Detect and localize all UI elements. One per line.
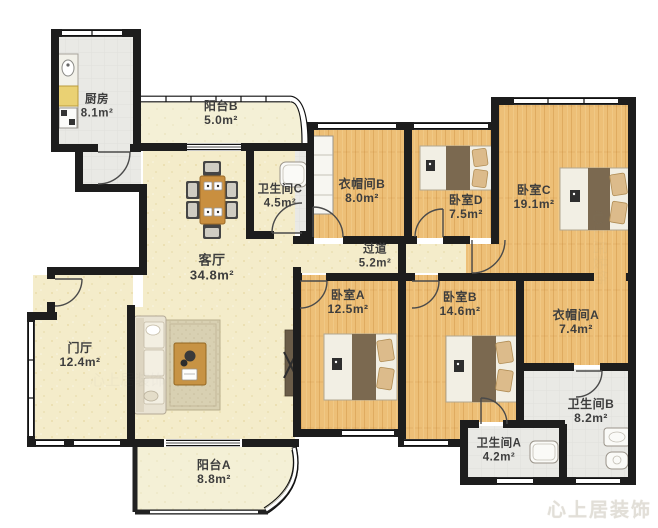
- bed-b-icon: [446, 336, 517, 402]
- coffee-table-icon: [174, 343, 206, 385]
- room-area: 14.6m²: [439, 304, 480, 318]
- room-label-bedroom-b: 卧室B 14.6m²: [439, 290, 480, 318]
- washbasin-icon: [530, 441, 558, 463]
- room-name: 卧室A: [327, 288, 368, 302]
- room-name: 卧室B: [439, 290, 480, 304]
- svg-text:心上居装饰: 心上居装饰: [591, 210, 608, 285]
- room-name: 过道: [359, 243, 392, 257]
- room-label-foyer: 门厅 12.4m²: [59, 341, 100, 369]
- room-label-bedroom-c: 卧室C 19.1m²: [513, 183, 554, 211]
- room-label-bedroom-d: 卧室D 7.5m²: [449, 193, 483, 221]
- room-name: 卫生间A: [477, 437, 522, 451]
- room-area: 5.2m²: [359, 257, 392, 271]
- room-label-cloakroom-a: 衣帽间A 7.4m²: [553, 308, 600, 336]
- kitchen-counter-icon: [58, 54, 78, 128]
- room-area: 4.5m²: [258, 197, 303, 211]
- room-area: 4.2m²: [477, 451, 522, 465]
- room-name: 客厅: [190, 253, 234, 268]
- svg-text:心上居装饰: 心上居装饰: [90, 372, 165, 389]
- room-area: 7.4m²: [553, 322, 600, 336]
- room-name: 厨房: [81, 93, 114, 107]
- room-label-hallway: 过道 5.2m²: [359, 243, 392, 270]
- room-label-balcony-b: 阳台B 5.0m²: [204, 99, 238, 127]
- room-area: 19.1m²: [513, 197, 554, 211]
- room-area: 34.8m²: [190, 268, 234, 283]
- room-area: 8.2m²: [568, 411, 615, 425]
- toilet-icon: [606, 452, 628, 469]
- room-name: 衣帽间B: [339, 177, 386, 191]
- room-area: 5.0m²: [204, 113, 238, 127]
- room-name: 门厅: [59, 341, 100, 355]
- room-label-bathroom-c: 卫生间C 4.5m²: [258, 183, 303, 210]
- sink-icon: [604, 428, 630, 446]
- room-label-cloakroom-b: 衣帽间B 8.0m²: [339, 177, 386, 205]
- room-name: 衣帽间A: [553, 308, 600, 322]
- room-area: 7.5m²: [449, 207, 483, 221]
- room-area: 12.5m²: [327, 302, 368, 316]
- sofa-icon: [134, 316, 166, 414]
- room-label-bathroom-b: 卫生间B 8.2m²: [568, 397, 615, 425]
- room-name: 卧室D: [449, 193, 483, 207]
- brand-watermark: 心上居装饰: [547, 495, 652, 522]
- room-name: 卫生间B: [568, 397, 615, 411]
- room-label-kitchen: 厨房 8.1m²: [81, 93, 114, 120]
- room-name: 阳台B: [204, 99, 238, 113]
- room-label-bedroom-a: 卧室A 12.5m²: [327, 288, 368, 316]
- room-area: 8.1m²: [81, 107, 114, 121]
- floor-plan-drawing: 心上居装饰 心上居装饰: [0, 0, 658, 528]
- room-area: 8.0m²: [339, 191, 386, 205]
- bed-a-icon: [324, 334, 397, 400]
- room-label-living: 客厅 34.8m²: [190, 253, 234, 284]
- floor-plan-page: 心上居装饰 心上居装饰 厨房 8.1m² 阳台B 5.0m² 卫生间C 4.5m…: [0, 0, 658, 528]
- room-name: 卫生间C: [258, 183, 303, 197]
- room-area: 12.4m²: [59, 355, 100, 369]
- wardrobe-icon: [313, 136, 333, 214]
- bed-d-icon: [420, 146, 493, 190]
- room-name: 阳台A: [197, 458, 231, 472]
- room-name: 卧室C: [513, 183, 554, 197]
- room-area: 8.8m²: [197, 472, 231, 486]
- room-label-balcony-a: 阳台A 8.8m²: [197, 458, 231, 486]
- room-label-bathroom-a: 卫生间A 4.2m²: [477, 437, 522, 464]
